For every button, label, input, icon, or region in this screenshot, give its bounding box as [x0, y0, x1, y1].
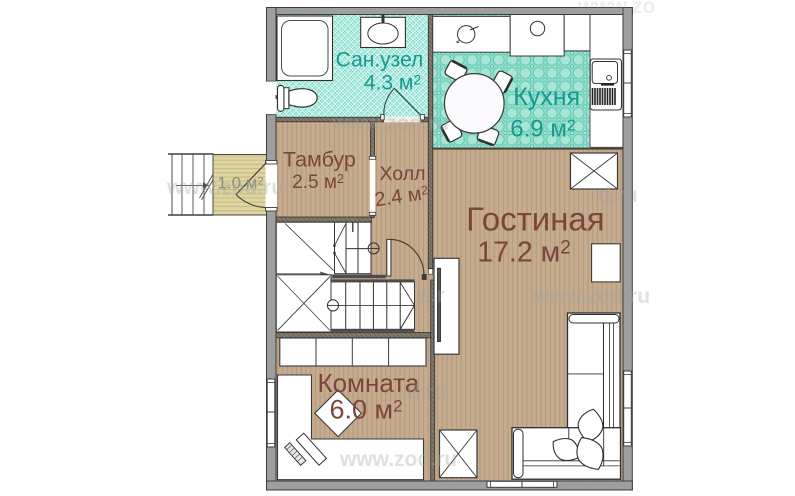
svg-text:Комната: Комната — [317, 368, 419, 398]
svg-text:Холл: Холл — [380, 163, 426, 185]
svg-text:www.zod.ru: www.zod.ru — [166, 176, 284, 199]
svg-text:Гостиная: Гостиная — [466, 201, 605, 238]
svg-text:6.0 м2: 6.0 м2 — [329, 395, 402, 425]
svg-text:Кухня: Кухня — [513, 83, 580, 111]
svg-text:Сан.узел: Сан.узел — [336, 49, 424, 72]
svg-text:2.5 м2: 2.5 м2 — [292, 172, 344, 193]
svg-text:www.zo: www.zo — [577, 0, 655, 18]
svg-text:www.zod.ru: www.zod.ru — [331, 112, 449, 135]
svg-text:d.ru: d.ru — [407, 381, 447, 404]
svg-text:4.3 м2: 4.3 м2 — [364, 72, 421, 95]
svg-text:17.2 м2: 17.2 м2 — [477, 237, 571, 269]
svg-text:d.r: d.r — [418, 284, 445, 307]
svg-text:www.zod.ru: www.zod.ru — [532, 285, 650, 308]
svg-text:d.ru: d.ru — [598, 184, 638, 207]
svg-text:www.zod.ru: www.zod.ru — [339, 448, 457, 471]
svg-text:Тамбур: Тамбур — [283, 148, 356, 172]
svg-text:6.9 м2: 6.9 м2 — [510, 116, 576, 143]
